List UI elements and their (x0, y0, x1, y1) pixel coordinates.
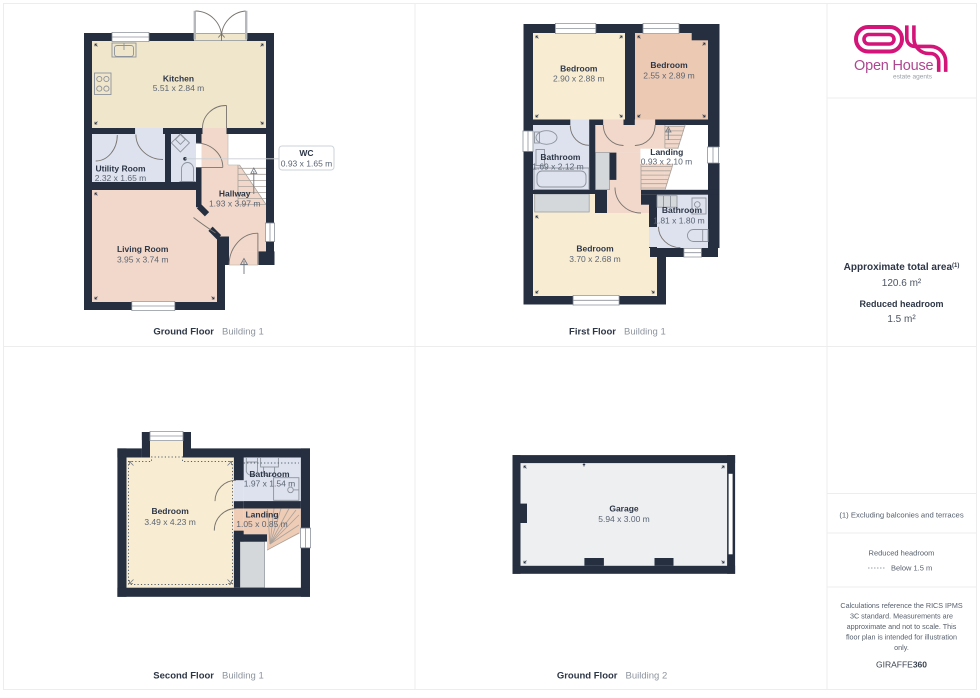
svg-text:3.49 x 4.23 m: 3.49 x 4.23 m (144, 517, 196, 527)
svg-text:Building 1: Building 1 (222, 327, 264, 338)
svg-text:1.97 x 1.54 m: 1.97 x 1.54 m (244, 478, 296, 488)
svg-text:1.05 x 0.85 m: 1.05 x 0.85 m (236, 519, 288, 529)
svg-text:2.55 x 2.89 m: 2.55 x 2.89 m (643, 71, 695, 81)
svg-text:Bedroom: Bedroom (650, 60, 688, 70)
svg-text:First Floor: First Floor (569, 327, 616, 338)
svg-text:120.6 m²: 120.6 m² (882, 278, 922, 289)
svg-text:1.5 m²: 1.5 m² (887, 314, 916, 325)
svg-text:3.95 x 3.74 m: 3.95 x 3.74 m (117, 255, 169, 265)
svg-text:3.70 x 2.68 m: 3.70 x 2.68 m (569, 254, 621, 264)
svg-text:Building 1: Building 1 (222, 671, 264, 682)
svg-text:estate agents: estate agents (893, 74, 933, 81)
svg-text:1.93 x 3.97 m: 1.93 x 3.97 m (209, 199, 261, 209)
svg-text:WC: WC (299, 148, 313, 158)
svg-text:approximate and not to scale.: approximate and not to scale. This (847, 622, 957, 631)
svg-text:2.32 x 1.65 m: 2.32 x 1.65 m (95, 173, 147, 183)
svg-text:Utility Room: Utility Room (95, 164, 145, 174)
svg-text:Hallway: Hallway (219, 189, 251, 199)
svg-text:GIRAFFE360: GIRAFFE360 (876, 660, 927, 670)
svg-text:Bedroom: Bedroom (151, 506, 189, 516)
svg-text:Ground Floor: Ground Floor (153, 327, 214, 338)
svg-text:Building 1: Building 1 (624, 327, 666, 338)
svg-text:3C standard. Measurements are: 3C standard. Measurements are (850, 612, 953, 621)
svg-text:Living Room: Living Room (117, 244, 169, 254)
svg-text:floor plan is intended for ill: floor plan is intended for illustration (846, 633, 957, 642)
svg-text:2.90 x 2.88 m: 2.90 x 2.88 m (553, 74, 605, 84)
svg-text:Reduced headroom: Reduced headroom (869, 549, 935, 558)
svg-text:1.69 x 2.12 m: 1.69 x 2.12 m (532, 161, 584, 171)
svg-text:(1) Excluding balconies and te: (1) Excluding balconies and terraces (839, 511, 964, 520)
svg-text:Bedroom: Bedroom (560, 64, 598, 74)
svg-text:5.51 x 2.84 m: 5.51 x 2.84 m (153, 83, 205, 93)
svg-text:Below 1.5 m: Below 1.5 m (891, 564, 932, 573)
svg-text:0.93 x 1.65 m: 0.93 x 1.65 m (281, 159, 333, 169)
svg-text:0.93 x 2.10 m: 0.93 x 2.10 m (641, 156, 693, 166)
svg-text:Reduced headroom: Reduced headroom (859, 299, 943, 309)
svg-text:5.94 x 3.00 m: 5.94 x 3.00 m (598, 514, 650, 524)
svg-text:only.: only. (894, 643, 909, 652)
svg-text:Bathroom: Bathroom (662, 205, 703, 215)
svg-text:Ground Floor: Ground Floor (557, 671, 618, 682)
svg-text:Approximate total area(1): Approximate total area(1) (844, 262, 960, 273)
svg-text:Open House: Open House (854, 58, 934, 74)
svg-text:Calculations reference the RIC: Calculations reference the RICS IPMS (840, 601, 962, 610)
svg-text:Garage: Garage (609, 504, 639, 514)
svg-text:Second Floor: Second Floor (153, 671, 214, 682)
svg-text:Building 2: Building 2 (626, 671, 668, 682)
svg-text:Bedroom: Bedroom (576, 244, 614, 254)
svg-text:1.81 x 1.80 m: 1.81 x 1.80 m (653, 215, 705, 225)
